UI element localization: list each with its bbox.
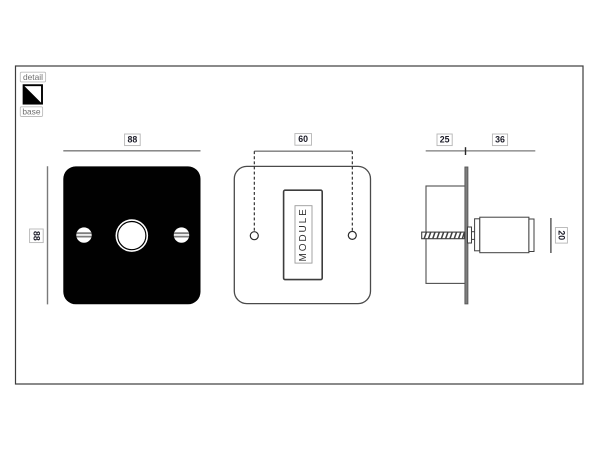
svg-text:36: 36 [495, 135, 505, 145]
svg-text:25: 25 [440, 135, 450, 145]
svg-text:60: 60 [298, 134, 308, 144]
svg-text:88: 88 [128, 135, 138, 145]
svg-text:MODULE: MODULE [298, 207, 309, 261]
svg-text:88: 88 [31, 231, 41, 241]
svg-text:detail: detail [23, 72, 43, 82]
svg-text:base: base [22, 107, 41, 117]
svg-text:20: 20 [556, 230, 566, 240]
